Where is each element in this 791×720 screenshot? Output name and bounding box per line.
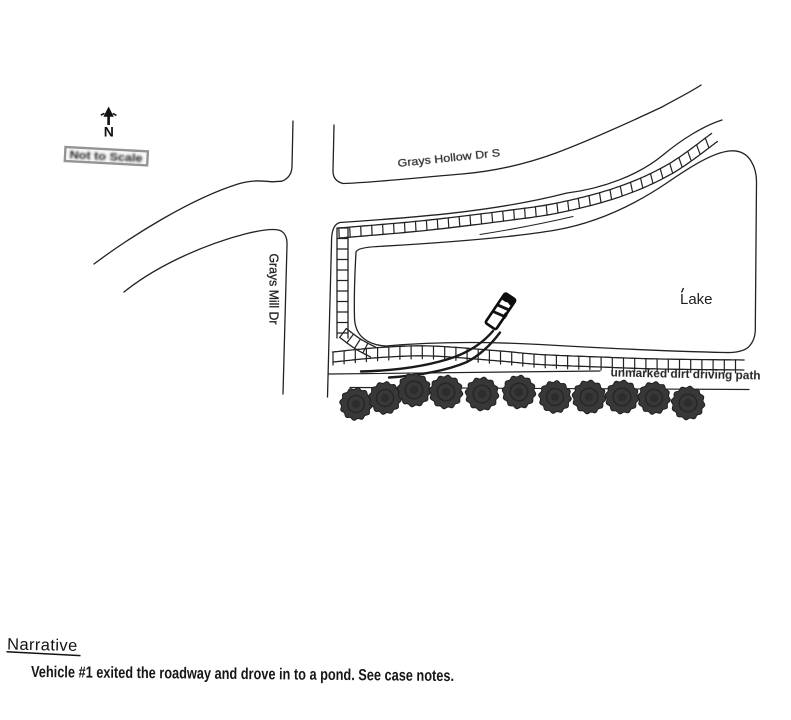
svg-text:N: N [104,124,114,140]
svg-text:Grays Mill Dr: Grays Mill Dr [267,254,281,325]
svg-text:Lake: Lake [680,291,713,308]
